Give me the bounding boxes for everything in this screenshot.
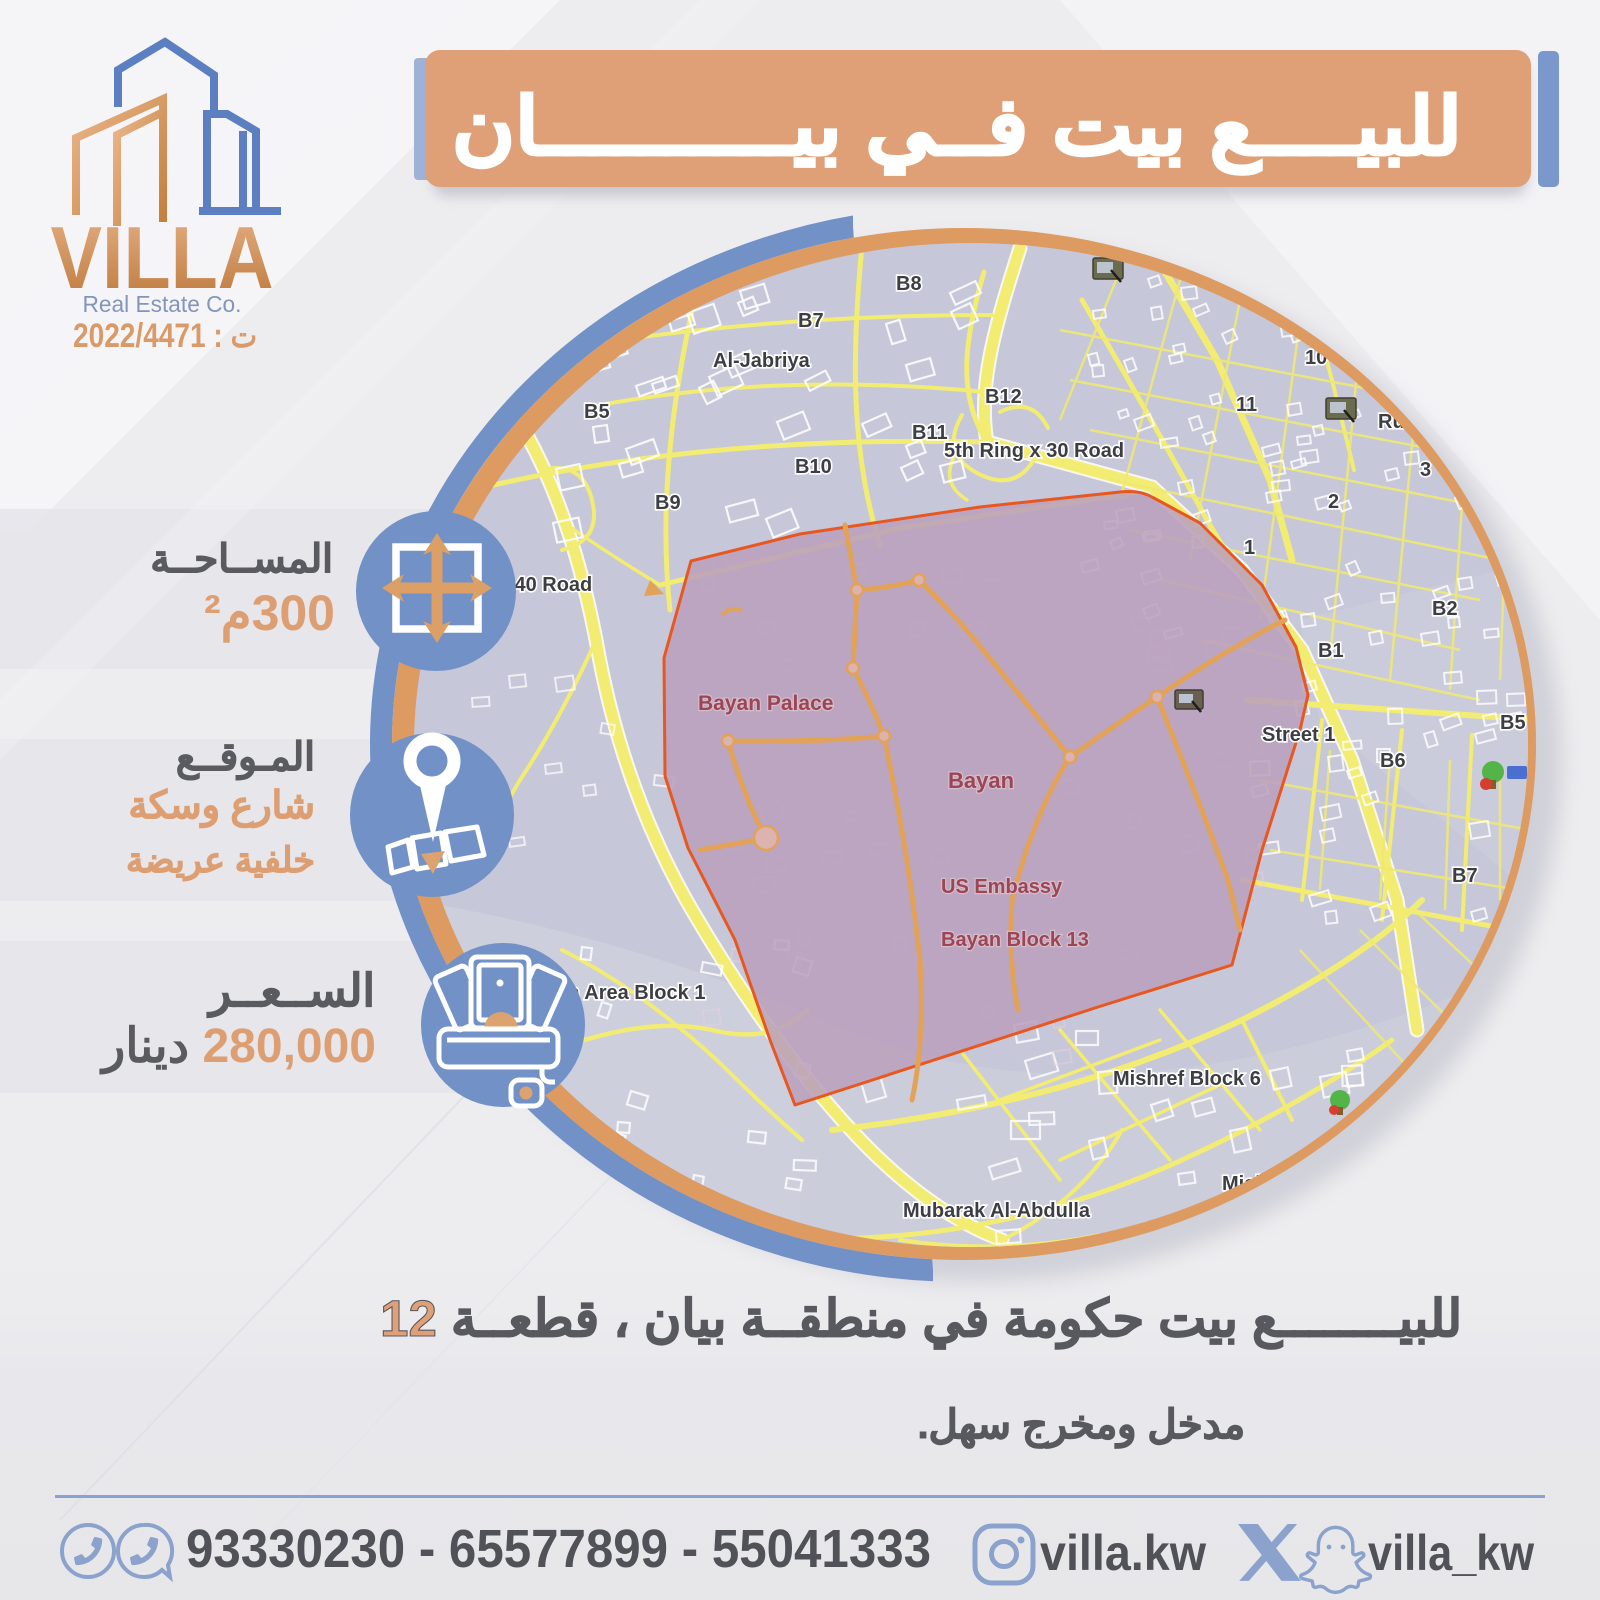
svg-text:B6: B6 [1380, 750, 1406, 772]
svg-text:Real Estate Co.: Real Estate Co. [83, 291, 242, 317]
svg-text:B5: B5 [584, 401, 610, 423]
svg-text:الســعــر: الســعــر [206, 965, 375, 1018]
svg-text:Bayan: Bayan [948, 768, 1014, 793]
svg-text:المســاحــة: المســاحــة [150, 538, 333, 581]
svg-text:B9: B9 [655, 492, 681, 514]
svg-text:Bayan Block 13: Bayan Block 13 [941, 929, 1089, 951]
svg-text:villa.kw: villa.kw [1040, 1525, 1206, 1581]
svg-text:خلفية عريضة: خلفية عريضة [126, 841, 315, 882]
svg-text:5th Ring x 30 Road: 5th Ring x 30 Road [944, 440, 1124, 462]
svg-text:شارع وسكة: شارع وسكة [128, 785, 315, 828]
svg-text:المـوقــع: المـوقــع [176, 736, 315, 781]
svg-text:B8: B8 [896, 273, 922, 295]
svg-text:B7: B7 [798, 310, 824, 332]
svg-text:B10: B10 [795, 456, 832, 478]
svg-text:Street 1: Street 1 [1262, 724, 1335, 746]
svg-text:2: 2 [1328, 491, 1339, 513]
svg-text:93330230 - 65577899 - 55041333: 93330230 - 65577899 - 55041333 [186, 1519, 931, 1579]
svg-text:B5: B5 [1500, 712, 1526, 734]
svg-text:Mishref Block 6: Mishref Block 6 [1113, 1068, 1261, 1090]
svg-text:Al-Jabriya: Al-Jabriya [713, 350, 811, 372]
svg-text:B2: B2 [1432, 598, 1458, 620]
svg-text:B1: B1 [1318, 640, 1344, 662]
svg-text:للبيــــــــع بيت حكومة في منط: للبيــــــــع بيت حكومة في منطقــة بيان … [380, 1290, 1462, 1350]
svg-text:11: 11 [1236, 394, 1257, 416]
svg-text:B12: B12 [985, 386, 1022, 408]
svg-text:Bayan Palace: Bayan Palace [698, 692, 833, 715]
svg-text:Mubarak Al-Abdulla: Mubarak Al-Abdulla [903, 1200, 1091, 1222]
svg-text:US Embassy: US Embassy [941, 876, 1063, 898]
svg-text:B11: B11 [912, 422, 948, 444]
svg-text:1: 1 [1244, 537, 1255, 559]
svg-text:ت : 2022/4471: ت : 2022/4471 [73, 317, 257, 355]
svg-text:280,000 دينار: 280,000 دينار [99, 1020, 376, 1075]
svg-text:B7: B7 [1452, 865, 1478, 887]
svg-text:villa_kw: villa_kw [1368, 1525, 1534, 1581]
svg-text:للبيــــع بيت فــي بيـــــــــ: للبيــــع بيت فــي بيــــــــــان [452, 82, 1462, 175]
svg-text:مدخل ومخرج سهل.: مدخل ومخرج سهل. [918, 1403, 1245, 1449]
svg-text:300م²: 300م² [204, 585, 335, 643]
svg-text:3: 3 [1420, 459, 1431, 481]
